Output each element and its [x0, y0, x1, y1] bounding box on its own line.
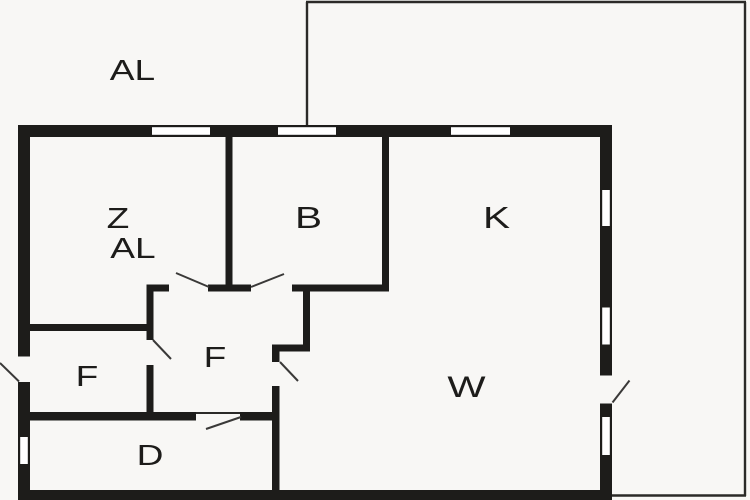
svg-text:D: D — [137, 440, 164, 472]
svg-text:K: K — [483, 201, 510, 235]
svg-text:AL: AL — [110, 55, 155, 87]
svg-text:F: F — [76, 361, 99, 393]
svg-text:Z: Z — [107, 203, 130, 235]
svg-text:W: W — [447, 370, 486, 404]
svg-text:B: B — [295, 201, 322, 235]
svg-text:F: F — [204, 342, 227, 374]
svg-text:AL: AL — [110, 233, 155, 265]
